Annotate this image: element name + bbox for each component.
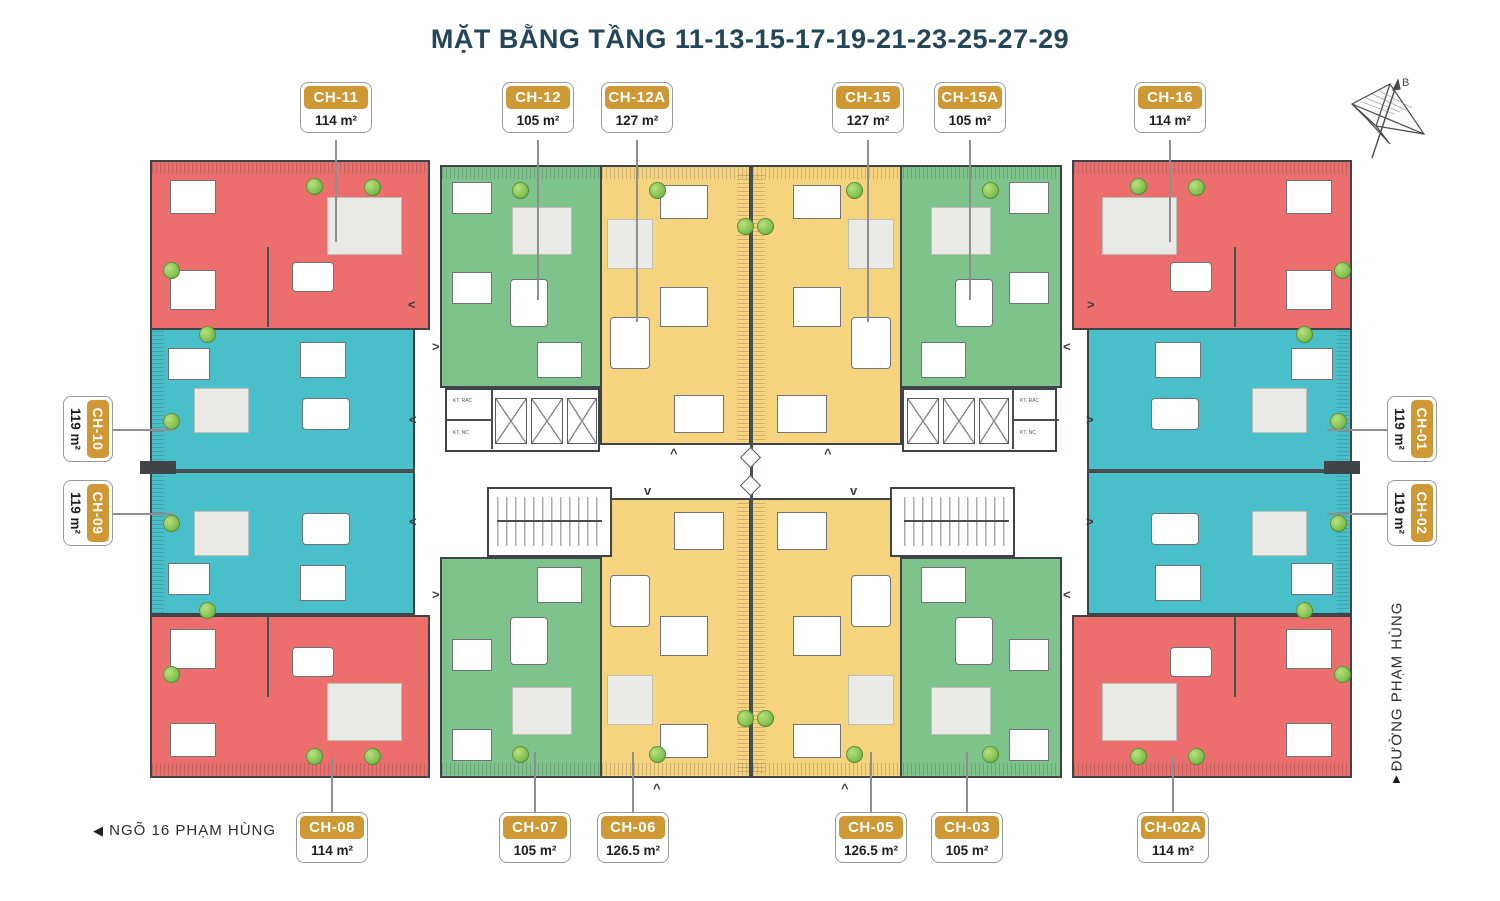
- leader-line: [113, 513, 173, 515]
- unit-CH-15: [751, 165, 902, 445]
- unit-label-CH-08: CH-08 114 m²: [296, 812, 368, 863]
- chevron-icon: <: [408, 298, 416, 311]
- furniture-table: [1151, 513, 1199, 545]
- unit-label-CH-01: CH-01 119 m²: [1387, 396, 1437, 462]
- furniture-bed: [660, 724, 708, 758]
- furniture-rug: [607, 675, 653, 725]
- furniture-table: [610, 317, 650, 369]
- furniture-table: [955, 279, 993, 327]
- left-arrow-icon: ◀: [93, 823, 104, 838]
- unit-id-badge: CH-05: [839, 816, 903, 839]
- street-name: ĐƯỜNG PHẠM HÙNG: [1389, 602, 1406, 772]
- furniture-bed: [777, 395, 827, 433]
- tree-icon: [1330, 515, 1347, 532]
- unit-area: 119 m²: [67, 484, 87, 542]
- leader-line: [867, 140, 869, 322]
- core-label-water: KT. NC: [453, 430, 469, 436]
- tree-icon: [364, 748, 381, 765]
- unit-id-badge: CH-15: [836, 86, 900, 109]
- unit-label-CH-02: CH-02 119 m²: [1387, 480, 1437, 546]
- balcony-hatch: [753, 763, 899, 775]
- street-label-ngo16: ◀ NGÕ 16 PHẠM HÙNG: [93, 822, 276, 839]
- tree-icon: [306, 178, 323, 195]
- tree-icon: [1330, 413, 1347, 430]
- party-wall-center: [750, 168, 753, 775]
- leader-line: [870, 752, 872, 812]
- furniture-bed: [170, 629, 216, 669]
- street-label-pham-hung: ĐƯỜNG PHẠM HÙNG: [1389, 577, 1406, 797]
- unit-id-badge: CH-16: [1138, 86, 1202, 109]
- stair-core-left: [487, 487, 612, 557]
- unit-id-badge: CH-11: [304, 86, 368, 109]
- furniture-bed: [793, 724, 841, 758]
- leader-line: [331, 757, 333, 812]
- unit-CH-02A: [1072, 615, 1352, 778]
- balcony-hatch: [1337, 475, 1349, 613]
- core-label-trash: KT. RÁC: [453, 398, 472, 404]
- unit-area: 105 m²: [506, 109, 570, 129]
- unit-id-badge: CH-10: [87, 400, 109, 458]
- chevron-icon: v: [644, 484, 651, 497]
- unit-id-badge: CH-02: [1411, 484, 1433, 542]
- unit-CH-11: [150, 160, 430, 330]
- tree-icon: [846, 746, 863, 763]
- elevator-shaft: [943, 398, 975, 444]
- tree-icon: [737, 710, 754, 727]
- chevron-icon: <: [409, 515, 417, 528]
- furniture-rug: [327, 683, 402, 741]
- center-diamond-marker: [740, 447, 761, 468]
- unit-label-CH-16: CH-16 114 m²: [1134, 82, 1206, 133]
- unit-CH-15A: [897, 165, 1062, 388]
- tree-icon: [757, 218, 774, 235]
- furniture-bed: [674, 512, 724, 550]
- tree-icon: [982, 182, 999, 199]
- core-label-trash: KT. RÁC: [1020, 398, 1039, 404]
- chevron-icon: >: [1087, 298, 1095, 311]
- tree-icon: [1296, 326, 1313, 343]
- unit-label-CH-12A: CH-12A 127 m²: [601, 82, 673, 133]
- furniture-rug: [512, 687, 572, 735]
- furniture-rug: [512, 207, 572, 255]
- chevron-icon: ^: [653, 782, 661, 795]
- unit-label-CH-07: CH-07 105 m²: [499, 812, 571, 863]
- leader-line: [1169, 140, 1171, 242]
- balcony-divider: [1324, 461, 1360, 474]
- unit-area: 114 m²: [300, 839, 364, 859]
- furniture-rug: [848, 675, 894, 725]
- chevron-icon: <: [409, 413, 417, 426]
- wall-segment: [1234, 247, 1236, 327]
- balcony-hatch: [899, 763, 1059, 775]
- unit-CH-02: [1087, 471, 1352, 615]
- compass-north-icon: B: [1338, 70, 1438, 170]
- furniture-bed: [1286, 180, 1332, 214]
- furniture-rug: [194, 511, 249, 556]
- furniture-bed: [777, 512, 827, 550]
- unit-area: 126.5 m²: [601, 839, 665, 859]
- furniture-bed: [170, 723, 216, 757]
- unit-area: 119 m²: [67, 400, 87, 458]
- street-name: NGÕ 16 PHẠM HÙNG: [109, 822, 276, 839]
- elevator-shaft: [907, 398, 939, 444]
- unit-CH-05: [751, 498, 902, 778]
- furniture-table: [510, 279, 548, 327]
- tree-icon: [1188, 179, 1205, 196]
- chevron-icon: >: [1086, 413, 1094, 426]
- elevator-core-left: KT. RÁC KT. NC: [445, 388, 600, 452]
- balcony-hatch: [1074, 763, 1349, 775]
- furniture-bed: [168, 563, 210, 595]
- furniture-table: [610, 575, 650, 627]
- tree-icon: [1130, 178, 1147, 195]
- floorplan-page: MẶT BẰNG TẦNG 11-13-15-17-19-21-23-25-27…: [0, 0, 1500, 901]
- unit-id-badge: CH-15A: [938, 86, 1002, 109]
- furniture-bed: [660, 185, 708, 219]
- unit-CH-03: [897, 557, 1062, 778]
- wall-segment: [1234, 617, 1236, 697]
- tree-icon: [1334, 666, 1351, 683]
- balcony-hatch: [152, 162, 427, 174]
- furniture-rug: [931, 687, 991, 735]
- wall-segment: [447, 419, 491, 421]
- leader-line: [636, 140, 638, 322]
- furniture-bed: [660, 287, 708, 327]
- furniture-rug: [931, 207, 991, 255]
- furniture-table: [302, 513, 350, 545]
- furniture-bed: [1155, 342, 1201, 378]
- leader-line: [1327, 513, 1387, 515]
- balcony-hatch: [152, 763, 427, 775]
- unit-label-CH-11: CH-11 114 m²: [300, 82, 372, 133]
- party-wall: [1087, 469, 1352, 472]
- unit-label-CH-09: CH-09 119 m²: [63, 480, 113, 546]
- chevron-icon: ^: [841, 782, 849, 795]
- furniture-bed: [452, 729, 492, 761]
- chevron-icon: <: [1063, 340, 1071, 353]
- furniture-bed: [1009, 639, 1049, 671]
- tree-icon: [512, 182, 529, 199]
- leader-line: [335, 140, 337, 242]
- party-wall: [150, 469, 415, 472]
- chevron-icon: ^: [670, 447, 678, 460]
- tree-icon: [364, 179, 381, 196]
- unit-area: 127 m²: [836, 109, 900, 129]
- tree-icon: [163, 515, 180, 532]
- furniture-bed: [170, 180, 216, 214]
- unit-label-CH-15A: CH-15A 105 m²: [934, 82, 1006, 133]
- leader-line: [1327, 429, 1387, 431]
- unit-label-CH-15: CH-15 127 m²: [832, 82, 904, 133]
- furniture-bed: [1155, 565, 1201, 601]
- stair-core-right: [890, 487, 1015, 557]
- unit-CH-12A: [600, 165, 751, 445]
- balcony-hatch: [442, 167, 602, 179]
- unit-id-badge: CH-12A: [605, 86, 669, 109]
- furniture-rug: [607, 219, 653, 269]
- furniture-table: [1151, 398, 1199, 430]
- compass-label: B: [1402, 77, 1409, 89]
- elevator-shaft: [495, 398, 527, 444]
- unit-id-badge: CH-07: [503, 816, 567, 839]
- balcony-hatch: [602, 763, 748, 775]
- balcony-hatch: [1337, 330, 1349, 468]
- furniture-bed: [168, 348, 210, 380]
- furniture-table: [851, 317, 891, 369]
- tree-icon: [649, 746, 666, 763]
- tree-icon: [737, 218, 754, 235]
- furniture-table: [1170, 647, 1212, 677]
- leader-line: [969, 140, 971, 300]
- unit-label-CH-02A: CH-02A 114 m²: [1137, 812, 1209, 863]
- balcony-divider: [140, 461, 176, 474]
- wall-segment: [267, 617, 269, 697]
- unit-area: 105 m²: [503, 839, 567, 859]
- tree-icon: [199, 602, 216, 619]
- wall-segment: [1014, 419, 1059, 421]
- unit-id-badge: CH-12: [506, 86, 570, 109]
- tree-icon: [306, 748, 323, 765]
- tree-icon: [512, 746, 529, 763]
- wall-segment: [497, 520, 602, 522]
- balcony-hatch: [899, 167, 1059, 179]
- furniture-bed: [452, 639, 492, 671]
- furniture-rug: [848, 219, 894, 269]
- unit-area: 105 m²: [935, 839, 999, 859]
- wall-segment: [267, 247, 269, 327]
- unit-area: 114 m²: [1138, 109, 1202, 129]
- furniture-bed: [1009, 182, 1049, 214]
- leader-line: [534, 752, 536, 812]
- tree-icon: [163, 262, 180, 279]
- unit-area: 105 m²: [938, 109, 1002, 129]
- furniture-bed: [1291, 348, 1333, 380]
- furniture-bed: [452, 272, 492, 304]
- tree-icon: [163, 666, 180, 683]
- balcony-hatch: [602, 167, 748, 179]
- tree-icon: [982, 746, 999, 763]
- unit-label-CH-06: CH-06 126.5 m²: [597, 812, 669, 863]
- leader-line: [1172, 757, 1174, 812]
- tree-icon: [1188, 748, 1205, 765]
- unit-label-CH-10: CH-10 119 m²: [63, 396, 113, 462]
- wall-segment: [491, 390, 493, 449]
- furniture-table: [851, 575, 891, 627]
- unit-id-badge: CH-08: [300, 816, 364, 839]
- furniture-bed: [793, 616, 841, 656]
- furniture-bed: [1286, 629, 1332, 669]
- furniture-bed: [537, 342, 582, 378]
- furniture-bed: [793, 287, 841, 327]
- tree-icon: [1334, 262, 1351, 279]
- unit-CH-10: [150, 328, 415, 471]
- leader-line: [113, 429, 173, 431]
- furniture-bed: [452, 182, 492, 214]
- tree-icon: [1130, 748, 1147, 765]
- furniture-rug: [1252, 388, 1307, 433]
- chevron-icon: >: [1086, 515, 1094, 528]
- tree-icon: [199, 326, 216, 343]
- unit-label-CH-05: CH-05 126.5 m²: [835, 812, 907, 863]
- balcony-hatch: [753, 167, 899, 179]
- unit-CH-08: [150, 615, 430, 778]
- furniture-bed: [1009, 272, 1049, 304]
- up-arrow-icon: ▲: [1390, 770, 1403, 787]
- leader-line: [537, 140, 539, 300]
- furniture-rug: [1252, 511, 1307, 556]
- unit-id-badge: CH-03: [935, 816, 999, 839]
- balcony-hatch: [1074, 162, 1349, 174]
- unit-area: 126.5 m²: [839, 839, 903, 859]
- furniture-bed: [1286, 723, 1332, 757]
- chevron-icon: >: [432, 588, 440, 601]
- furniture-rug: [327, 197, 402, 255]
- balcony-hatch: [442, 763, 602, 775]
- unit-id-badge: CH-09: [87, 484, 109, 542]
- furniture-bed: [1291, 563, 1333, 595]
- furniture-rug: [194, 388, 249, 433]
- furniture-bed: [1009, 729, 1049, 761]
- furniture-bed: [300, 565, 346, 601]
- center-diamond-marker: [740, 475, 761, 496]
- furniture-table: [955, 617, 993, 665]
- unit-area: 119 m²: [1391, 400, 1411, 458]
- furniture-bed: [674, 395, 724, 433]
- unit-id-badge: CH-02A: [1141, 816, 1205, 839]
- furniture-bed: [660, 616, 708, 656]
- furniture-bed: [1286, 270, 1332, 310]
- furniture-bed: [793, 185, 841, 219]
- elevator-shaft: [531, 398, 563, 444]
- balcony-hatch: [152, 475, 164, 613]
- unit-CH-06: [600, 498, 751, 778]
- furniture-bed: [537, 567, 582, 603]
- furniture-table: [510, 617, 548, 665]
- chevron-icon: <: [1063, 588, 1071, 601]
- balcony-hatch: [152, 330, 164, 468]
- unit-CH-01: [1087, 328, 1352, 471]
- unit-id-badge: CH-06: [601, 816, 665, 839]
- chevron-icon: >: [432, 340, 440, 353]
- elevator-shaft: [979, 398, 1009, 444]
- chevron-icon: ^: [824, 447, 832, 460]
- leader-line: [632, 752, 634, 812]
- core-label-water: KT. NC: [1020, 430, 1036, 436]
- unit-label-CH-12: CH-12 105 m²: [502, 82, 574, 133]
- page-title: MẶT BẰNG TẦNG 11-13-15-17-19-21-23-25-27…: [0, 24, 1500, 55]
- unit-CH-09: [150, 471, 415, 615]
- unit-CH-07: [440, 557, 605, 778]
- furniture-table: [302, 398, 350, 430]
- furniture-bed: [921, 567, 966, 603]
- tree-icon: [846, 182, 863, 199]
- furniture-bed: [300, 342, 346, 378]
- elevator-core-right: KT. RÁC KT. NC: [902, 388, 1057, 452]
- unit-area: 114 m²: [1141, 839, 1205, 859]
- tree-icon: [1296, 602, 1313, 619]
- wall-segment: [904, 520, 1009, 522]
- furniture-table: [1170, 262, 1212, 292]
- furniture-rug: [1102, 683, 1177, 741]
- elevator-shaft: [567, 398, 597, 444]
- unit-id-badge: CH-01: [1411, 400, 1433, 458]
- tree-icon: [757, 710, 774, 727]
- unit-area: 119 m²: [1391, 484, 1411, 542]
- unit-area: 114 m²: [304, 109, 368, 129]
- furniture-bed: [921, 342, 966, 378]
- tree-icon: [163, 413, 180, 430]
- unit-label-CH-03: CH-03 105 m²: [931, 812, 1003, 863]
- unit-CH-16: [1072, 160, 1352, 330]
- tree-icon: [649, 182, 666, 199]
- furniture-rug: [1102, 197, 1177, 255]
- furniture-table: [292, 262, 334, 292]
- furniture-table: [292, 647, 334, 677]
- leader-line: [966, 752, 968, 812]
- chevron-icon: v: [850, 484, 857, 497]
- unit-area: 127 m²: [605, 109, 669, 129]
